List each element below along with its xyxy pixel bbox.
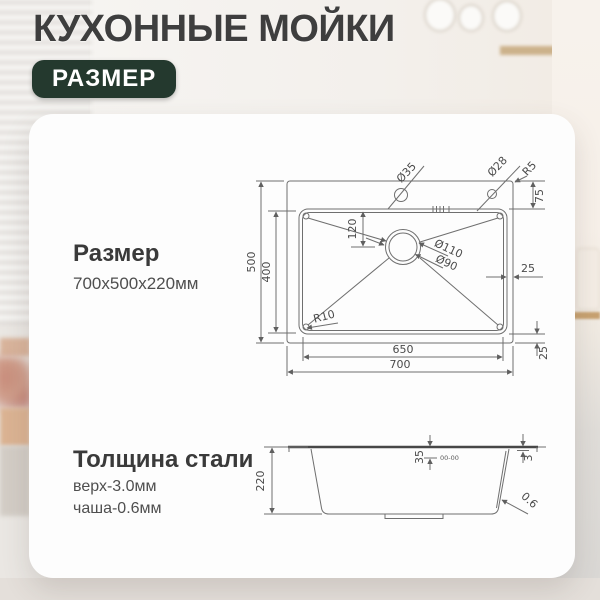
size-value: 700x500x220мм: [73, 274, 198, 294]
bottom-counter-blur: [0, 578, 600, 600]
plate-icon: [458, 4, 484, 32]
canister-icon: [576, 248, 600, 310]
plate-icon: [424, 0, 456, 32]
left-decor-blur: [0, 356, 32, 410]
left-furniture-blur: [0, 338, 30, 356]
size-badge: РАЗМЕР: [32, 60, 176, 98]
left-counter-blur: [0, 446, 30, 516]
thickness-section-title: Толщина стали: [73, 446, 253, 474]
page-title: КУХОННЫЕ МОЙКИ: [33, 8, 395, 51]
thickness-top-value: верх-3.0мм: [73, 478, 157, 496]
wood-shelf-line: [572, 312, 600, 319]
thickness-bowl-value: чаша-0.6мм: [73, 500, 162, 518]
wood-shelf-edge: [500, 46, 600, 55]
size-section-title: Размер: [73, 240, 159, 268]
plate-icon: [492, 0, 522, 32]
left-wood-blur: [0, 408, 30, 446]
product-infographic: КУХОННЫЕ МОЙКИ РАЗМЕР Размер 700x500x220…: [0, 0, 600, 600]
